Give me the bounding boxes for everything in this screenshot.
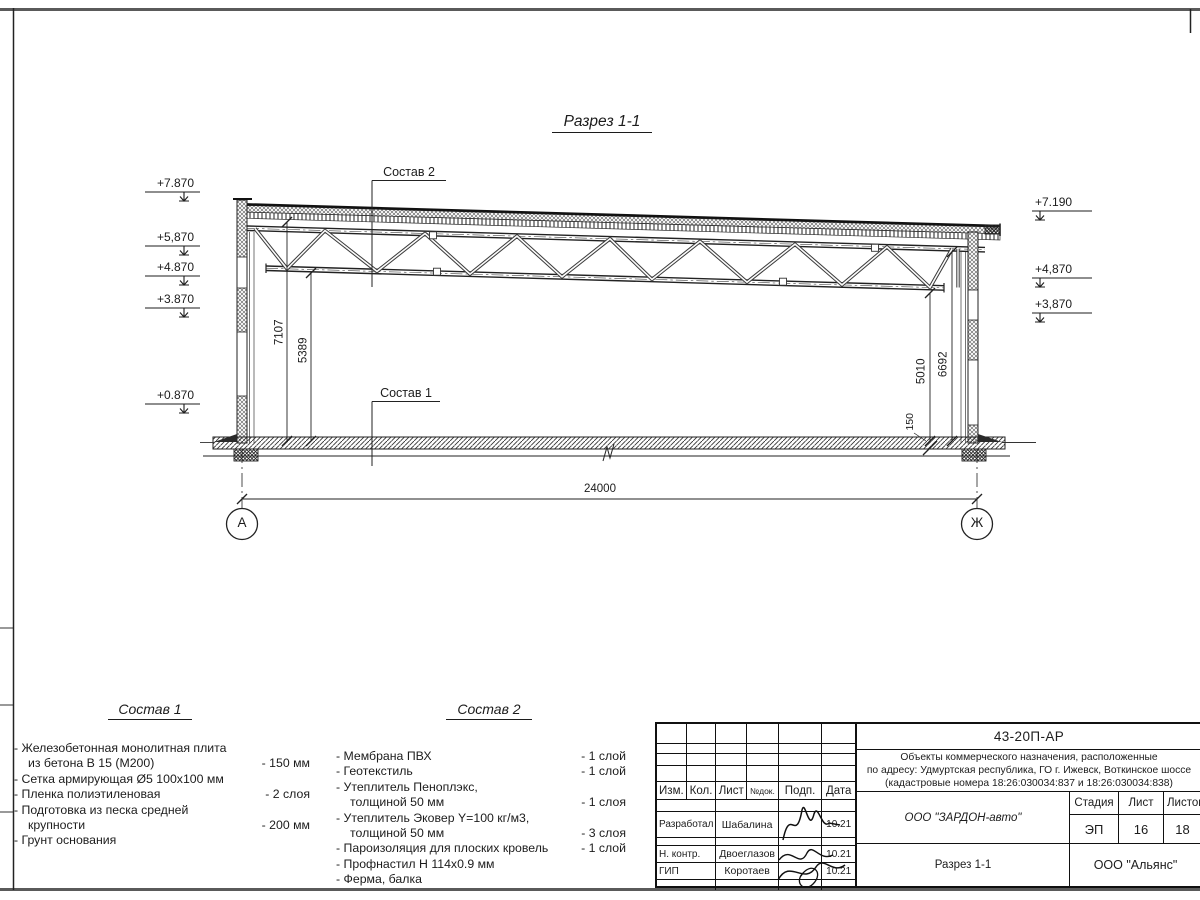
- signature-row: ГИП Коротаев 10.21: [657, 863, 855, 880]
- composition-line: - Мембрана ПВХ- 1 слой: [336, 749, 626, 764]
- composition-line: - Грунт основания: [14, 833, 310, 848]
- dimension-label: 150: [905, 402, 917, 442]
- composition-line: - Пароизоляция для плоских кровель- 1 сл…: [336, 841, 626, 856]
- composition-line: - Пленка полиэтиленовая- 2 слоя: [14, 787, 310, 802]
- composition-line: из бетона В 15 (М200)- 150 мм: [14, 756, 310, 771]
- composition-line: - Утеплитель Эковер Y=100 кг/м3,: [336, 811, 626, 826]
- dimension-label: 7107: [274, 302, 287, 362]
- composition-line: - Геотекстиль- 1 слой: [336, 764, 626, 779]
- composition-line: толщиной 50 мм- 3 слоя: [336, 826, 626, 841]
- organization-name: ООО "ЗАРДОН-авто": [857, 792, 1070, 844]
- elevation-label: +5,870: [142, 231, 194, 244]
- dimension-label: 5389: [298, 320, 311, 380]
- composition-line: - Профнастил Н 114x0.9 мм: [336, 857, 626, 872]
- elevation-label: +4,870: [1035, 263, 1090, 276]
- vertical-dimensions: [282, 217, 957, 455]
- drawing-sheet: Разрез 1-1 Состав 2 Состав 1 +7.870 +5,8…: [0, 0, 1200, 900]
- roof-assembly: [247, 204, 1000, 240]
- sheet-value: 16: [1119, 815, 1164, 844]
- dimension-label: 24000: [560, 483, 640, 496]
- company-name: ООО "Альянс": [1070, 844, 1200, 886]
- title-block: Изм. Кол. Лист №док. Подп. Дата Разработ…: [655, 722, 1200, 888]
- sheets-header: Листов: [1164, 792, 1200, 815]
- elevation-label: +3.870: [142, 293, 194, 306]
- sheet-title: Разрез 1-1: [857, 844, 1070, 886]
- document-code: 43-20П-АР: [857, 724, 1200, 750]
- dimension-label: 5010: [916, 341, 929, 401]
- elevation-label: +3,870: [1035, 298, 1090, 311]
- composition-line: - Железобетонная монолитная плита: [14, 741, 310, 756]
- view-title: Разрез 1-1: [552, 113, 652, 133]
- dimension-label: 6692: [938, 334, 951, 394]
- stage-header: Стадия: [1070, 792, 1119, 815]
- composition-line: - Ферма, балка: [336, 872, 626, 887]
- callout-floor-label: Состав 1: [372, 387, 440, 401]
- axis-label-left: А: [227, 516, 257, 531]
- composition-1-title: Состав 1: [108, 702, 192, 720]
- composition-line: толщиной 50 мм- 1 слоя: [336, 795, 626, 810]
- signature-table: Изм. Кол. Лист №док. Подп. Дата Разработ…: [657, 724, 857, 886]
- composition-2-list: - Мембрана ПВХ- 1 слой - Геотекстиль- 1 …: [336, 749, 626, 888]
- stage-value: ЭП: [1070, 815, 1119, 844]
- composition-line: - Утеплитель Пеноплэкс,: [336, 780, 626, 795]
- composition-1-list: - Железобетонная монолитная плита из бет…: [14, 741, 310, 849]
- sheets-value: 18: [1164, 815, 1200, 844]
- composition-line: - Сетка армирующая Ø5 100x100 мм: [14, 772, 310, 787]
- composition-line: крупности- 200 мм: [14, 818, 310, 833]
- elevation-label: +0.870: [142, 389, 194, 402]
- signature-row: Разработал Шабалина 10.21: [657, 812, 855, 838]
- project-description: Объекты коммерческого назначения, распол…: [857, 750, 1200, 792]
- sheet-header: Лист: [1119, 792, 1164, 815]
- elevation-label: +7.190: [1035, 196, 1090, 209]
- axis-label-right: Ж: [962, 516, 992, 531]
- elevation-label: +4.870: [142, 261, 194, 274]
- signature-row: Н. контр. Двоеглазов 10.21: [657, 846, 855, 863]
- signature-table-header: Изм. Кол. Лист №док. Подп. Дата: [657, 782, 855, 800]
- elevation-label: +7.870: [142, 177, 194, 190]
- composition-2-title: Состав 2: [446, 702, 532, 720]
- callout-roof-label: Состав 2: [372, 166, 446, 180]
- composition-line: - Подготовка из песка средней: [14, 803, 310, 818]
